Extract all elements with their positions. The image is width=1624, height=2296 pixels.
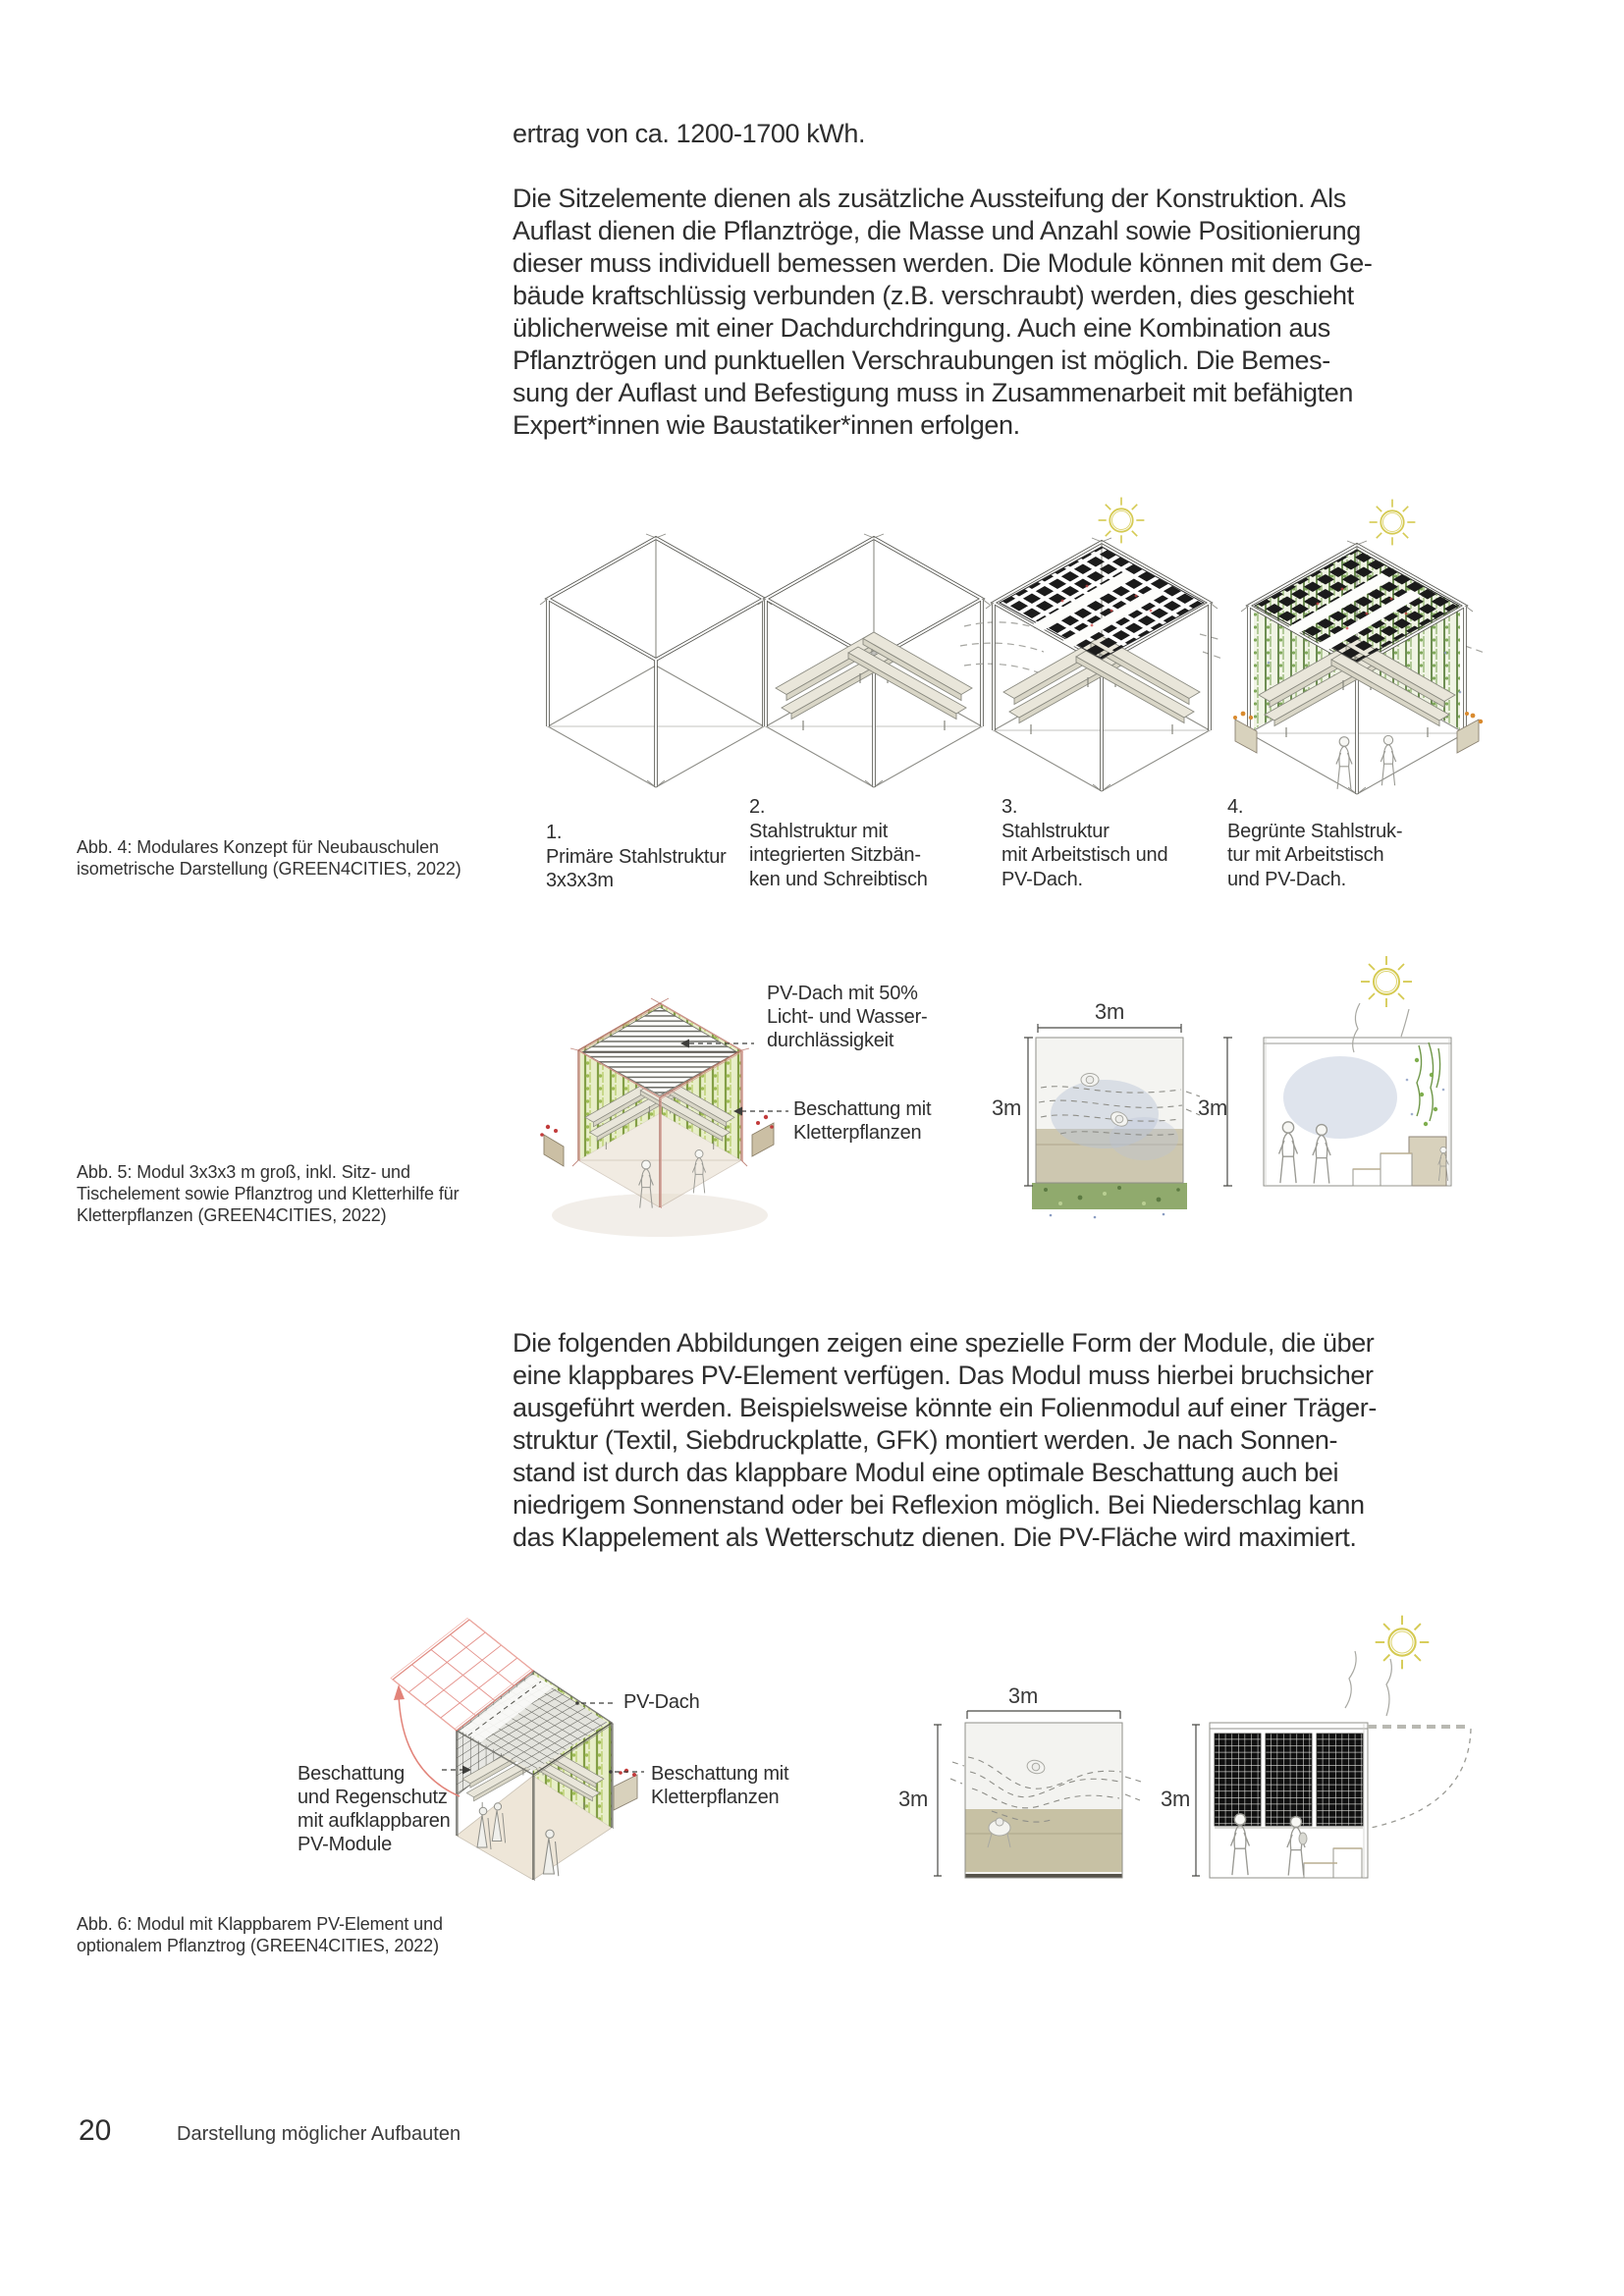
cube-step-2 (758, 534, 990, 787)
report-page: ertrag von ca. 1200-1700 kWh. Die Sitzel… (0, 0, 1624, 2296)
page-number: 20 (79, 2114, 111, 2148)
caption-abb6: Abb. 6: Modul mit Klappbarem PV-Element … (77, 1913, 443, 1956)
cube-step-3 (986, 538, 1218, 791)
dim-plan-width-abb5: 3m (1085, 999, 1134, 1025)
cube-step-1 (540, 534, 772, 787)
section-view-panel (1223, 956, 1451, 1186)
section-view-panel (1192, 1616, 1471, 1878)
annotation-pv-roof-abb5: PV-Dach mit 50% Licht- und Wasser- durch… (767, 982, 928, 1052)
figure-step-label-1: 1. Primäre Stahlstruktur 3x3x3m (546, 821, 727, 893)
annotation-pv-roof-abb6: PV-Dach (623, 1690, 700, 1714)
dim-section-height-abb5: 3m (1198, 1095, 1227, 1121)
figure-step-label-3: 3. Stahlstruktur mit Arbeitstisch und PV… (1001, 795, 1167, 891)
figure-step-label-4: 4. Begrünte Stahlstruk- tur mit Arbeitst… (1227, 795, 1402, 891)
dimension-line (1192, 1725, 1200, 1876)
plan-view-panel (1024, 1024, 1200, 1218)
cube-step-4 (1233, 541, 1483, 794)
paragraph-foldable-module: Die folgenden Abbildungen zeigen eine sp… (513, 1327, 1494, 1554)
footer-section-title: Darstellung möglicher Aufbauten (177, 2123, 460, 2146)
dim-plan-width-abb6: 3m (1001, 1683, 1045, 1709)
figure-step-label-2: 2. Stahlstruktur mit integrierten Sitzbä… (749, 795, 928, 891)
annotation-shading-abb6: Beschattung mit Kletterpflanzen (651, 1762, 788, 1809)
caption-abb4: Abb. 4: Modulares Konzept für Neubauschu… (77, 836, 461, 880)
dim-section-height-abb6: 3m (1161, 1787, 1190, 1812)
paragraph-seating-structure: Die Sitzelemente dienen als zusätzliche … (513, 183, 1494, 442)
annotation-foldable-abb6: Beschattung und Regenschutz mit aufklapp… (298, 1762, 451, 1856)
plan-view-panel (934, 1711, 1141, 1878)
figure-abb6-foldable-module (363, 1571, 1483, 1904)
annotation-shading-abb5: Beschattung mit Kletterpflanzen (793, 1097, 931, 1145)
dim-plan-height-abb5: 3m (992, 1095, 1021, 1121)
paragraph-energy-yield: ertrag von ca. 1200-1700 kWh. (513, 118, 1494, 150)
dim-plan-height-abb6: 3m (898, 1787, 928, 1812)
figure-abb4-modular-concept (520, 491, 1502, 805)
caption-abb5: Abb. 5: Modul 3x3x3 m groß, inkl. Sitz- … (77, 1161, 460, 1226)
module-drawing (540, 998, 774, 1237)
